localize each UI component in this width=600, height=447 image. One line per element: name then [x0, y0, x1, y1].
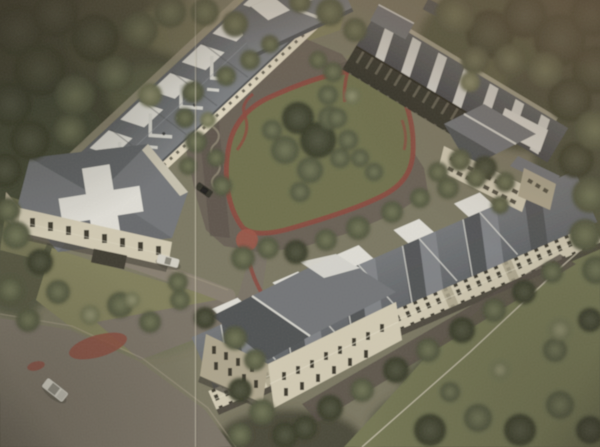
vignette-overlay	[0, 0, 600, 447]
film-grain	[0, 0, 600, 447]
aerial-rendering-canvas	[0, 0, 600, 447]
architectural-rendering: Sepia-toned aerial architectural renderi…	[0, 0, 600, 447]
